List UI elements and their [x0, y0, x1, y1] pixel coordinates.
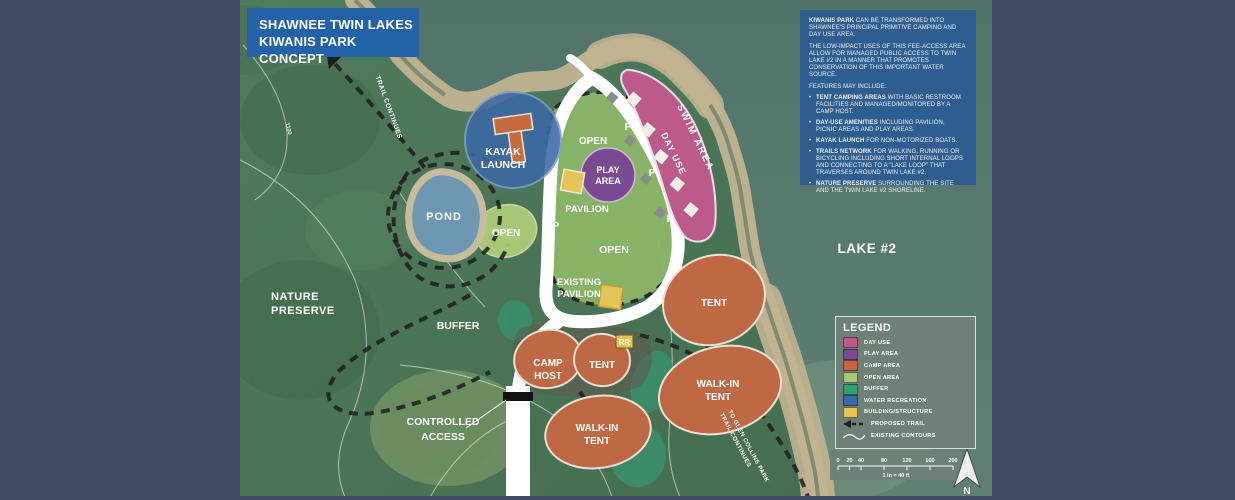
parking-marker: P	[546, 278, 553, 289]
features-heading: FEATURES MAY INCLUDE:	[809, 84, 967, 91]
buffer-swatch	[843, 384, 858, 395]
access-gate	[503, 392, 533, 401]
nature-preserve-label: NATURE	[271, 291, 319, 303]
scale-bar: 0 20 40 80 120 160 200 1 in = 40 ft	[830, 450, 962, 480]
scale-tick-label: 160	[925, 458, 934, 464]
walk-in-tent-south-label: TENT	[584, 436, 610, 447]
camp-host-label: HOST	[534, 371, 562, 382]
scale-tick-label: 40	[858, 458, 864, 464]
scale-tick-label: 80	[881, 458, 887, 464]
play-area-label: PLAY	[596, 165, 619, 175]
walk-in-tent-south-label: WALK-IN	[576, 423, 619, 434]
description-paragraph: KIWANIS PARK CAN BE TRANSFORMED INTO SHA…	[809, 18, 967, 40]
parking-marker: P	[667, 214, 674, 225]
feature-bullet: •TENT CAMPING AREAS WITH BASIC RESTROOM …	[809, 95, 967, 117]
building-swatch	[843, 407, 858, 418]
restroom-label: RR	[619, 338, 631, 347]
feature-bullet: •NATURE PRESERVE SURROUNDING THE SITE AN…	[809, 181, 967, 195]
description-paragraph: THE LOW-IMPACT USES OF THIS FEE-ACCESS A…	[809, 44, 967, 80]
tent-north-label: TENT	[589, 360, 615, 371]
contour-line-icon	[843, 431, 865, 441]
open-north-label: OPEN	[579, 136, 607, 147]
play-area-label: AREA	[595, 176, 621, 186]
feature-bullet: •TRAILS NETWORK FOR WALKING, RUNNING OR …	[809, 149, 967, 178]
scale-tick-label: 200	[948, 458, 957, 464]
legend-item-open-area: OPEN AREA	[843, 372, 968, 384]
feature-bullet: •DAY-USE AMENITIES INCLUDING PAVILION, P…	[809, 120, 967, 134]
parking-marker: P	[644, 302, 651, 313]
legend-item-camp-area: CAMP AREA	[843, 360, 968, 372]
day-use-swatch	[843, 337, 858, 348]
map-title-line2: KIWANIS PARK CONCEPT	[259, 33, 419, 67]
play-area-swatch	[843, 349, 858, 360]
scale-tick-label: 20	[846, 458, 852, 464]
existing-pavilion-building	[599, 285, 624, 310]
restroom-building: RR	[616, 335, 633, 348]
existing-pavilion-label: EXISTING	[557, 277, 601, 288]
open-west-label: OPEN	[492, 228, 520, 239]
north-label: N	[963, 486, 970, 496]
walk-in-tent-east-label: TENT	[705, 392, 731, 403]
pavilion-building	[560, 169, 584, 193]
legend-item-day-use: DAY USE	[843, 337, 968, 349]
legend-item-play-area: PLAY AREA	[843, 349, 968, 361]
park-concept-poster: RR P P P P P P TRAIL CONTINUES 1100 KAYA…	[0, 0, 1235, 500]
open-center-label: OPEN	[599, 244, 629, 256]
kayak-launch-label: KAYAK	[485, 146, 521, 158]
camp-host-label: CAMP	[533, 358, 563, 369]
legend-item-water-recreation: WATER RECREATION	[843, 395, 968, 407]
legend-title: LEGEND	[843, 322, 968, 334]
camp-area-swatch	[843, 360, 858, 371]
map-title-line1: SHAWNEE TWIN LAKES	[259, 16, 419, 33]
description-panel: KIWANIS PARK CAN BE TRANSFORMED INTO SHA…	[800, 10, 976, 185]
map-title: SHAWNEE TWIN LAKES KIWANIS PARK CONCEPT	[247, 8, 419, 57]
kayak-launch-label: LAUNCH	[481, 159, 525, 171]
scale-tick-label: 120	[902, 458, 911, 464]
controlled-access-label: ACCESS	[421, 431, 465, 443]
legend-item-proposed-trail: PROPOSED TRAIL	[843, 418, 968, 430]
meadow	[370, 370, 526, 486]
scale-caption: 1 in = 40 ft	[882, 473, 909, 479]
legend-item-building: BUILDING/STRUCTURE	[843, 407, 968, 419]
legend-item-existing-contours: EXISTING CONTOURS	[843, 430, 968, 442]
feature-bullet: •KAYAK LAUNCH FOR NON-MOTORIZED BOATS.	[809, 138, 967, 145]
trail-arrow-icon	[843, 419, 865, 429]
pavilion-label: PAVILION	[565, 204, 609, 215]
legend-item-buffer: BUFFER	[843, 383, 968, 395]
play-area-circle	[581, 148, 635, 202]
scale-tick-label: 0	[836, 458, 839, 464]
tent-east-label: TENT	[701, 298, 727, 309]
controlled-access-label: CONTROLLED	[407, 416, 480, 428]
pond-label: POND	[426, 211, 462, 223]
walk-in-tent-east-label: WALK-IN	[697, 379, 740, 390]
parking-marker: P	[649, 168, 656, 179]
legend-panel: LEGEND DAY USE PLAY AREA CAMP AREA OPEN …	[835, 316, 976, 449]
lake-2-label: LAKE #2	[837, 241, 896, 256]
parking-marker: P	[553, 221, 560, 232]
water-recreation-swatch	[843, 395, 858, 406]
patterson-rd-label: PATTERSON RD	[513, 426, 520, 477]
buffer-label: BUFFER	[437, 320, 480, 332]
open-area-swatch	[843, 372, 858, 383]
parking-marker: P	[625, 122, 632, 133]
existing-pavilion-label: PAVILION	[557, 289, 601, 300]
nature-preserve-label: PRESERVE	[271, 305, 335, 317]
